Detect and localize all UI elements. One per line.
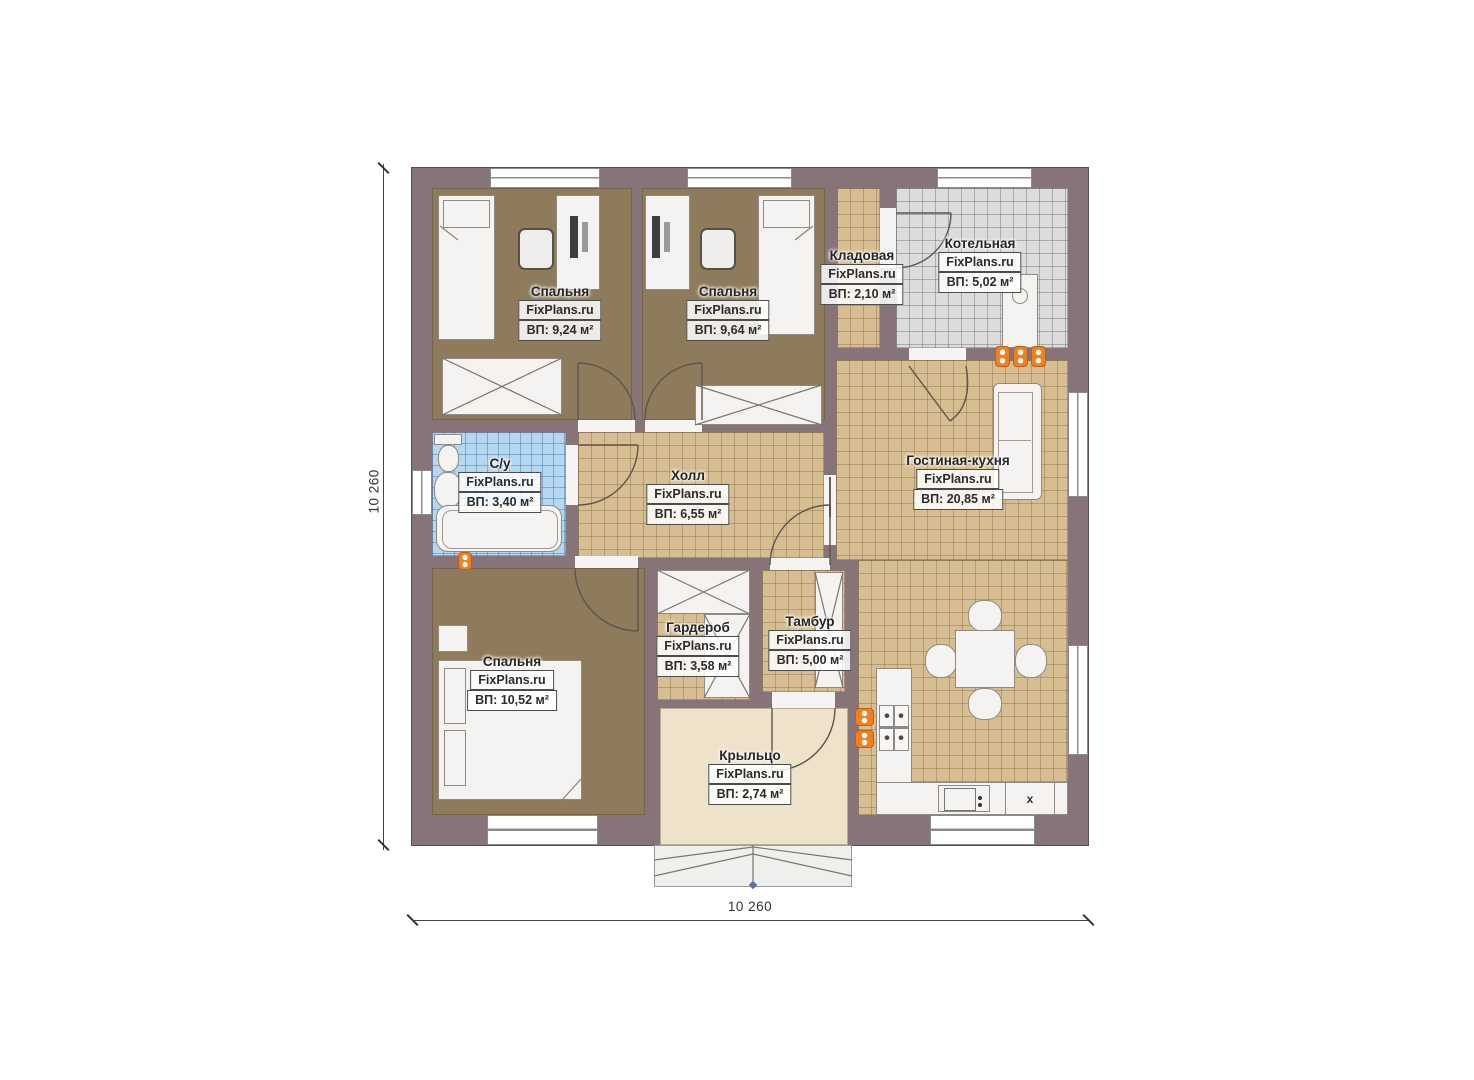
room-label-boiler: Котельная FixPlans.ru ВП: 5,02 м² <box>938 236 1021 293</box>
watermark: FixPlans.ru <box>938 252 1021 272</box>
watermark: FixPlans.ru <box>708 764 791 784</box>
watermark: FixPlans.ru <box>656 636 739 656</box>
room-label-vestibule: Тамбур FixPlans.ru ВП: 5,00 м² <box>768 614 851 671</box>
watermark: FixPlans.ru <box>458 472 541 492</box>
room-area: ВП: 9,64 м² <box>687 320 770 340</box>
room-name: Кладовая <box>830 248 895 263</box>
watermark: FixPlans.ru <box>686 300 769 320</box>
room-label-bedroom-1: Спальня FixPlans.ru ВП: 9,24 м² <box>518 284 601 341</box>
room-name: Крыльцо <box>719 748 780 763</box>
room-area: ВП: 3,40 м² <box>459 492 542 512</box>
room-area: ВП: 2,74 м² <box>709 784 792 804</box>
watermark: FixPlans.ru <box>820 264 903 284</box>
room-label-bedroom-2: Спальня FixPlans.ru ВП: 9,64 м² <box>686 284 769 341</box>
room-label-storage: Кладовая FixPlans.ru ВП: 2,10 м² <box>820 248 903 305</box>
room-area: ВП: 6,55 м² <box>647 504 730 524</box>
room-name: Спальня <box>483 654 541 669</box>
dimension-line-vertical <box>383 164 384 850</box>
watermark: FixPlans.ru <box>470 670 553 690</box>
dimension-width-label: 10 260 <box>728 899 772 914</box>
floor-plan: x <box>412 168 1088 845</box>
dimension-height-label: 10 260 <box>367 469 382 513</box>
room-area: ВП: 5,02 м² <box>939 272 1022 292</box>
room-name: Тамбур <box>786 614 835 629</box>
room-area: ВП: 20,85 м² <box>913 489 1003 509</box>
room-label-hall: Холл FixPlans.ru ВП: 6,55 м² <box>646 468 729 525</box>
room-label-living-kitchen: Гостиная-кухня FixPlans.ru ВП: 20,85 м² <box>906 453 1009 510</box>
room-area: ВП: 9,24 м² <box>519 320 602 340</box>
dimension-line-horizontal <box>412 920 1088 921</box>
porch-steps-lines <box>654 845 852 887</box>
room-area: ВП: 2,10 м² <box>821 284 904 304</box>
room-label-porch: Крыльцо FixPlans.ru ВП: 2,74 м² <box>708 748 791 805</box>
watermark: FixPlans.ru <box>916 469 999 489</box>
room-name: Холл <box>671 468 705 483</box>
floor-plan-page: { "plan": { "watermark": "FixPlans.ru", … <box>0 0 1474 1080</box>
room-label-wardrobe: Гардероб FixPlans.ru ВП: 3,58 м² <box>656 620 739 677</box>
watermark: FixPlans.ru <box>646 484 729 504</box>
room-name: Котельная <box>945 236 1016 251</box>
room-label-bathroom: С/у FixPlans.ru ВП: 3,40 м² <box>458 456 541 513</box>
room-area: ВП: 3,58 м² <box>657 656 740 676</box>
room-name: Гостиная-кухня <box>906 453 1009 468</box>
room-name: Спальня <box>699 284 757 299</box>
watermark: FixPlans.ru <box>518 300 601 320</box>
room-name: С/у <box>489 456 510 471</box>
room-label-bedroom-3: Спальня FixPlans.ru ВП: 10,52 м² <box>467 654 557 711</box>
room-name: Гардероб <box>666 620 730 635</box>
room-area: ВП: 5,00 м² <box>769 650 852 670</box>
watermark: FixPlans.ru <box>768 630 851 650</box>
room-area: ВП: 10,52 м² <box>467 690 557 710</box>
room-name: Спальня <box>531 284 589 299</box>
